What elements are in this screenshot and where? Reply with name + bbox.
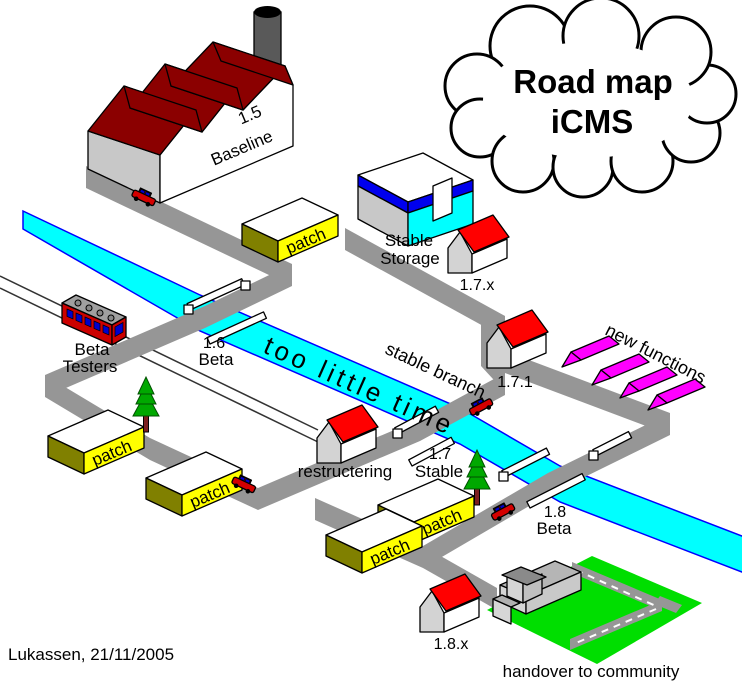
roadmap-diagram: 1.5 Baseline patch patch patch patch pat…	[0, 0, 742, 683]
cloud-title: Road map iCMS	[445, 0, 736, 197]
label-1-7-x: 1.7.x	[460, 277, 495, 294]
label-1-7-stable: Stable	[415, 462, 463, 481]
label-author: Lukassen, 21/11/2005	[8, 645, 174, 664]
patch-building-top: patch	[242, 198, 338, 262]
diagram-title-line2: iCMS	[551, 103, 634, 140]
label-storage-1: Stable	[385, 231, 433, 250]
house-1-8-x	[420, 574, 481, 632]
label-storage-2: Storage	[380, 249, 440, 268]
label-handover: handover to community	[503, 662, 680, 681]
storage-door	[433, 178, 452, 221]
label-restructering: restructering	[298, 462, 392, 481]
train	[62, 295, 126, 345]
factory-building: 1.5 Baseline	[88, 6, 293, 203]
label-1-8-x: 1.8.x	[434, 636, 469, 653]
label-1-7-1: 1.7.1	[497, 374, 533, 391]
label-beta-testers-2: Testers	[63, 357, 118, 376]
label-1-7: 1.7	[429, 446, 451, 463]
label-1-6-beta: Beta	[199, 350, 235, 369]
roadmap-canvas: 1.5 Baseline patch patch patch patch pat…	[0, 0, 742, 683]
patch-building-left-1: patch	[48, 410, 144, 474]
diagram-title-line1: Road map	[513, 63, 673, 100]
label-1-8-beta: Beta	[537, 519, 573, 538]
